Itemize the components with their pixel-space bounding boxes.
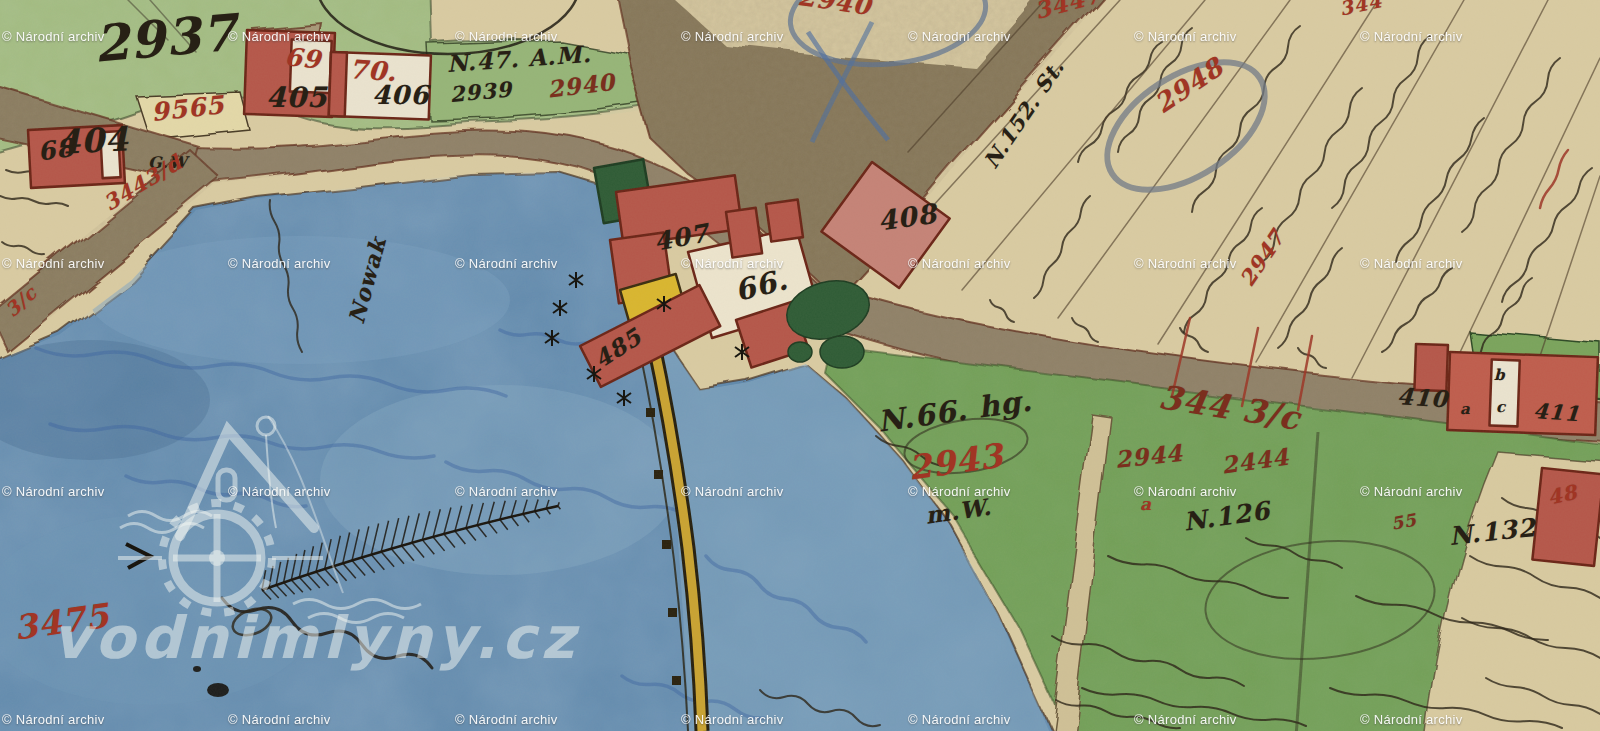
paper-grain-overlay — [0, 0, 1600, 731]
cadastral-map-screenshot: 29379565404684056970.406N.47. A.M.293929… — [0, 0, 1600, 731]
map-artwork — [0, 0, 1600, 731]
